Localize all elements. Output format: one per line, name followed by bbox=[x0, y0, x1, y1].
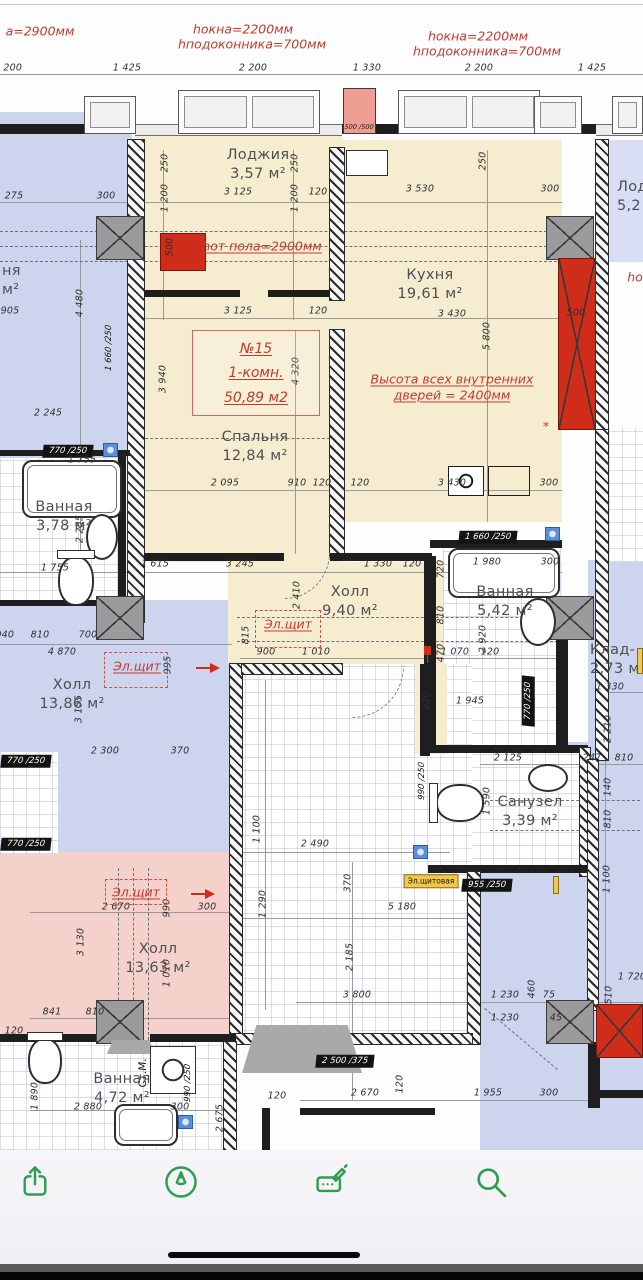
dimension-label: 300 bbox=[171, 1102, 190, 1112]
window bbox=[84, 96, 136, 134]
dim-line bbox=[265, 680, 266, 1010]
wall bbox=[230, 664, 242, 1044]
dimension-label: 720 bbox=[436, 560, 446, 579]
dimension-label: 1 100 bbox=[602, 865, 612, 893]
dimension-label: 1 200 bbox=[290, 184, 300, 212]
door-size-tag: 770 /250 bbox=[522, 675, 535, 726]
dimension-label: 1 010 bbox=[302, 647, 330, 657]
dimension-label: 810 bbox=[603, 810, 613, 829]
dimension-label: 275 bbox=[5, 191, 24, 201]
dimension-label: 810 bbox=[615, 753, 634, 763]
column bbox=[96, 216, 144, 260]
share-button[interactable] bbox=[12, 1160, 58, 1206]
room-name: Ванная bbox=[476, 583, 533, 602]
status-bar-area bbox=[0, 0, 643, 5]
room-area: 9,40 м² bbox=[322, 602, 378, 621]
dimension-label: 4 480 bbox=[75, 289, 85, 317]
fill-sign-button[interactable] bbox=[308, 1160, 354, 1206]
door-size-tag: 955 /250 bbox=[461, 879, 512, 892]
viewer-toolbar bbox=[0, 1150, 643, 1264]
room-name: Лоджия bbox=[227, 146, 290, 165]
sink-unit bbox=[545, 527, 560, 541]
room-name: Клад- bbox=[590, 641, 635, 660]
dimension-label: 841 bbox=[43, 1007, 62, 1017]
dimension-label: 3 130 bbox=[76, 928, 86, 956]
red-annotation: Эл.щит bbox=[112, 885, 160, 900]
red-annotation: Эл.щит bbox=[264, 617, 312, 632]
dimension-label: 300 bbox=[541, 184, 560, 194]
dimension-label: 3 125 bbox=[224, 306, 252, 316]
dimension-label: 1 230 bbox=[491, 1013, 519, 1023]
wall bbox=[330, 330, 344, 556]
room-name: Ванная bbox=[35, 498, 92, 517]
wall bbox=[300, 1108, 435, 1115]
dimension-label: 2 185 bbox=[345, 943, 355, 971]
dimension-label: 2 200 bbox=[239, 63, 267, 73]
room-name: Холл bbox=[331, 583, 370, 602]
sink-unit bbox=[413, 845, 428, 859]
red-marker-flag bbox=[424, 646, 431, 655]
dimension-label: 900 bbox=[257, 647, 276, 657]
box-fixture bbox=[346, 150, 388, 176]
wall bbox=[242, 664, 342, 674]
door-size-tag: 770 /250 bbox=[0, 755, 51, 768]
window-pane bbox=[252, 96, 315, 128]
red-marker-stem bbox=[427, 655, 428, 663]
red-annotation: hподоконника=700мм bbox=[413, 44, 561, 59]
floor-plan-image[interactable]: Эл.щитовая770 /2501 660 /250770 /250770 … bbox=[0, 0, 643, 1150]
red-annotation: а=2900мм bbox=[6, 24, 75, 39]
room-name: Холл bbox=[53, 676, 92, 695]
dimension-label: 2 125 bbox=[494, 753, 522, 763]
dimension-label: 3 125 bbox=[224, 187, 252, 197]
sink-unit bbox=[178, 1115, 193, 1129]
red-annotation: hподоконника=700мм bbox=[178, 37, 326, 52]
room-label: Ванная3,78 м² bbox=[35, 498, 92, 536]
dimension-label: 500 bbox=[165, 238, 175, 257]
room-name: Санузел bbox=[497, 793, 562, 812]
room-name: Спальня bbox=[222, 428, 289, 447]
shaft-section bbox=[107, 1040, 155, 1054]
room-area: 13,86 м² bbox=[39, 695, 104, 714]
dashed-line bbox=[0, 261, 562, 262]
dimension-label: 1 720 bbox=[618, 972, 643, 982]
screen: Эл.щитовая770 /2501 660 /250770 /250770 … bbox=[0, 0, 643, 1280]
dimension-label: 2 095 bbox=[211, 478, 239, 488]
wall bbox=[588, 760, 598, 1010]
bottom-black-bar bbox=[0, 1272, 643, 1280]
dimension-label: 470 bbox=[436, 644, 446, 663]
door-size-tag: 770 /250 bbox=[0, 838, 51, 851]
room-area: 5,2 bbox=[617, 197, 641, 216]
panel-room-label: Эл.щитовая bbox=[404, 874, 459, 888]
window-pane bbox=[404, 96, 467, 128]
red-annotation: hокна=2200мм bbox=[428, 29, 528, 44]
dimension-label: 300 bbox=[540, 1088, 559, 1098]
room-area: 3,39 м² bbox=[502, 812, 558, 831]
room-area: 2,73 м bbox=[590, 660, 640, 679]
dimension-label: 120 bbox=[351, 478, 370, 488]
dimension-label: 300 bbox=[97, 191, 116, 201]
dimension-label: 2 920 bbox=[478, 625, 488, 653]
door-size-tag: 990 /250 bbox=[418, 762, 427, 801]
room-label: Кухня19,61 м² bbox=[397, 266, 462, 304]
dimension-label: 45 bbox=[550, 1013, 563, 1023]
dimension-label: 1 755 bbox=[68, 455, 96, 465]
dimension-label: 1 425 bbox=[113, 63, 141, 73]
dimension-label: 1 755 bbox=[41, 563, 69, 573]
dimension-label: 810 bbox=[436, 606, 446, 625]
door-size-tag: 990 /250 bbox=[184, 1064, 193, 1103]
dimension-label: 4 870 bbox=[48, 647, 76, 657]
red-arrow-head bbox=[205, 889, 220, 899]
fill-sign-icon bbox=[312, 1163, 350, 1201]
dimension-label: 1 290 bbox=[258, 890, 268, 918]
dimension-label: 1 590 bbox=[482, 787, 492, 815]
dimension-label: 300 bbox=[198, 902, 217, 912]
dimension-label: 370 bbox=[343, 874, 353, 893]
red-annotation: Эл.щит bbox=[113, 659, 161, 674]
dimension-label: 810 bbox=[86, 1007, 105, 1017]
dimension-label: 500 bbox=[567, 308, 586, 318]
room-label: Ванная4,72 м² bbox=[93, 1070, 150, 1108]
dimension-label: 910 bbox=[288, 478, 307, 488]
red-arrow-line bbox=[196, 667, 210, 669]
unit-info-line: 1-комн. bbox=[228, 366, 283, 380]
dimension-label: 120 bbox=[309, 187, 328, 197]
room-label: Санузел3,39 м² bbox=[497, 793, 562, 831]
wall bbox=[262, 1108, 270, 1150]
markup-pen-icon bbox=[162, 1163, 200, 1201]
wall bbox=[428, 865, 588, 873]
dim-line bbox=[300, 1100, 600, 1101]
room-name: Ванная bbox=[93, 1070, 150, 1089]
dimension-label: 2 200 bbox=[465, 63, 493, 73]
dimension-label: 120 bbox=[395, 1075, 405, 1094]
dimension-label: 810 bbox=[31, 630, 50, 640]
wall bbox=[596, 430, 608, 760]
room-label: Холл13,86 м² bbox=[39, 676, 104, 714]
red-column bbox=[596, 1004, 643, 1058]
room-label: Холл13,63 м² bbox=[125, 940, 190, 978]
dimension-label: 3 940 bbox=[158, 365, 168, 393]
dim-line bbox=[0, 644, 232, 645]
dimension-label: 1 100 bbox=[252, 815, 262, 843]
wall bbox=[224, 1042, 236, 1150]
dimension-label: 2 300 bbox=[91, 746, 119, 756]
dimension-label: 1 615 bbox=[141, 559, 169, 569]
yellow-marker bbox=[553, 876, 559, 894]
dimension-label: 2 670 bbox=[351, 1088, 379, 1098]
wall bbox=[600, 1090, 643, 1098]
dimension-label: 3 245 bbox=[226, 559, 254, 569]
dimension-label: 120 bbox=[309, 306, 328, 316]
region bbox=[340, 140, 562, 522]
room-area: 3,78 м² bbox=[36, 517, 92, 536]
dimension-label: 510 bbox=[604, 986, 614, 1005]
stove-fixture bbox=[488, 466, 530, 496]
door-size-tag: 1 660 /250 bbox=[105, 324, 114, 371]
dimension-label: 3 800 bbox=[343, 990, 371, 1000]
wall bbox=[596, 140, 608, 432]
dimension-label: 1 230 bbox=[491, 990, 519, 1000]
wall bbox=[150, 1034, 236, 1042]
door-size-tag: 1 660 /250 bbox=[458, 531, 517, 544]
dimension-label: 120 bbox=[403, 559, 422, 569]
dimension-label: 1 330 bbox=[596, 682, 624, 692]
dimension-label: 5 800 bbox=[482, 322, 492, 350]
dimension-label: 1 330 bbox=[353, 63, 381, 73]
dimension-label: 3 430 bbox=[438, 309, 466, 319]
room-label: ням² bbox=[2, 262, 21, 300]
red-annotation: Высота всех внутренних bbox=[371, 372, 534, 387]
dimension-label: 815 bbox=[241, 626, 251, 645]
dimension-label: 905 bbox=[1, 306, 20, 316]
toilet-tank bbox=[429, 783, 438, 823]
room-name: Лод bbox=[617, 178, 643, 197]
search-button[interactable] bbox=[468, 1160, 514, 1206]
dimension-label: 370 bbox=[171, 746, 190, 756]
room-name: ня bbox=[2, 262, 21, 281]
oval-fixture bbox=[528, 764, 568, 792]
column bbox=[96, 596, 144, 640]
toilet-tank bbox=[27, 1032, 63, 1041]
dimension-label: 2 410 bbox=[292, 581, 302, 609]
search-icon bbox=[472, 1163, 510, 1201]
red-annotation: hо bbox=[627, 270, 643, 285]
window-pane bbox=[184, 96, 247, 128]
column bbox=[546, 216, 594, 260]
window bbox=[612, 96, 643, 134]
room-label: Ванная5,42 м² bbox=[476, 583, 533, 621]
dimension-label: 1 980 bbox=[473, 557, 501, 567]
red-annotation: * bbox=[543, 419, 549, 434]
dimension-label: 3 530 bbox=[406, 184, 434, 194]
dim-line bbox=[0, 74, 643, 75]
dimension-label: 1 040 bbox=[0, 630, 14, 640]
room-label: Спальня12,84 м² bbox=[222, 428, 289, 466]
unit-info-line: №15 bbox=[240, 342, 272, 356]
sink-unit bbox=[103, 443, 118, 457]
red-column bbox=[558, 258, 596, 430]
unit-info-box: №151-комн.50,89 м2 bbox=[192, 330, 320, 416]
dim-line bbox=[240, 658, 562, 659]
dimension-label: 1 945 bbox=[456, 696, 484, 706]
dim-line bbox=[135, 318, 562, 319]
window-pane bbox=[472, 96, 535, 128]
window bbox=[534, 96, 582, 134]
window bbox=[398, 90, 540, 134]
room-label: Холл9,40 м² bbox=[322, 583, 378, 621]
red-annotation: hот пола=2900мм bbox=[202, 239, 321, 254]
room-area: 3,57 м² bbox=[230, 165, 286, 184]
dimension-label: 2 490 bbox=[301, 839, 329, 849]
wall bbox=[144, 290, 240, 297]
markup-button[interactable] bbox=[158, 1160, 204, 1206]
tub-fixture bbox=[114, 1104, 178, 1146]
wall bbox=[468, 872, 480, 1044]
room-area: м² bbox=[2, 281, 19, 300]
dim-line bbox=[480, 764, 643, 765]
wall bbox=[268, 290, 330, 297]
dimension-label: 140 bbox=[603, 778, 613, 797]
dimension-label: 1 955 bbox=[474, 1088, 502, 1098]
dimension-label: 1 200 bbox=[160, 184, 170, 212]
dimension-label: 1 890 bbox=[30, 1082, 40, 1110]
dimension-label: 300 bbox=[540, 478, 559, 488]
wc-fixture bbox=[28, 1038, 62, 1084]
share-icon bbox=[16, 1163, 54, 1201]
red-annotation: дверей = 2400мм bbox=[394, 388, 511, 403]
dimension-label: 2 245 bbox=[34, 408, 62, 418]
dimension-label: 2 210 bbox=[603, 715, 613, 743]
room-area: 19,61 м² bbox=[397, 285, 462, 304]
room-area: 4,72 м² bbox=[94, 1089, 150, 1108]
wall bbox=[128, 140, 144, 622]
dimension-label: 250 bbox=[160, 154, 170, 173]
dimension-label: 120 bbox=[5, 1026, 24, 1036]
dimension-label: 75 bbox=[543, 990, 556, 1000]
room-label: Клад-2,73 м bbox=[590, 641, 640, 679]
wc-fixture bbox=[436, 784, 484, 822]
red-arrow-line bbox=[191, 893, 205, 895]
wall bbox=[330, 148, 344, 300]
bottom-grey-bar bbox=[0, 1264, 643, 1272]
dimension-label: 120 bbox=[313, 478, 332, 488]
dimension-label: 1 330 bbox=[364, 559, 392, 569]
dimension-label: 300 bbox=[541, 557, 560, 567]
home-indicator[interactable] bbox=[168, 1252, 360, 1258]
dimension-label: 1 425 bbox=[578, 63, 606, 73]
window-pane bbox=[618, 102, 637, 128]
room-label: Лод5,2 bbox=[617, 178, 643, 216]
unit-info-line: 50,89 м2 bbox=[224, 391, 288, 405]
window bbox=[178, 90, 320, 134]
room-name: Холл bbox=[139, 940, 178, 959]
window-pane bbox=[90, 102, 130, 128]
door-size-tag: 500 /500 bbox=[344, 124, 374, 131]
dimension-label: 2 200 bbox=[0, 63, 22, 73]
dashed-line bbox=[0, 231, 562, 232]
red-arrow-head bbox=[210, 663, 225, 673]
room-label: Лоджия3,57 м² bbox=[227, 146, 290, 184]
window-pane bbox=[540, 102, 576, 128]
room-name: Кухня bbox=[406, 266, 453, 285]
room-area: 12,84 м² bbox=[222, 447, 287, 466]
room-area: 5,42 м² bbox=[477, 602, 533, 621]
door-size-tag: 2 500 /375 bbox=[315, 1055, 374, 1068]
dimension-label: 920 bbox=[422, 692, 432, 711]
dimension-label: 120 bbox=[268, 1091, 287, 1101]
room-area: 13,63 м² bbox=[125, 959, 190, 978]
dim-line bbox=[0, 202, 562, 203]
dimension-label: 5 180 bbox=[388, 902, 416, 912]
dimension-label: 247 bbox=[583, 753, 602, 763]
dimension-label: 2 675 bbox=[215, 1104, 225, 1132]
dimension-label: 250 bbox=[290, 154, 300, 173]
toilet-tank bbox=[57, 550, 95, 559]
dimension-label: 460 bbox=[527, 980, 537, 999]
dimension-label: 3 430 bbox=[438, 478, 466, 488]
dimension-label: 700 bbox=[79, 630, 98, 640]
red-annotation: hокна=2200мм bbox=[193, 22, 293, 37]
dimension-label: 250 bbox=[478, 152, 488, 171]
